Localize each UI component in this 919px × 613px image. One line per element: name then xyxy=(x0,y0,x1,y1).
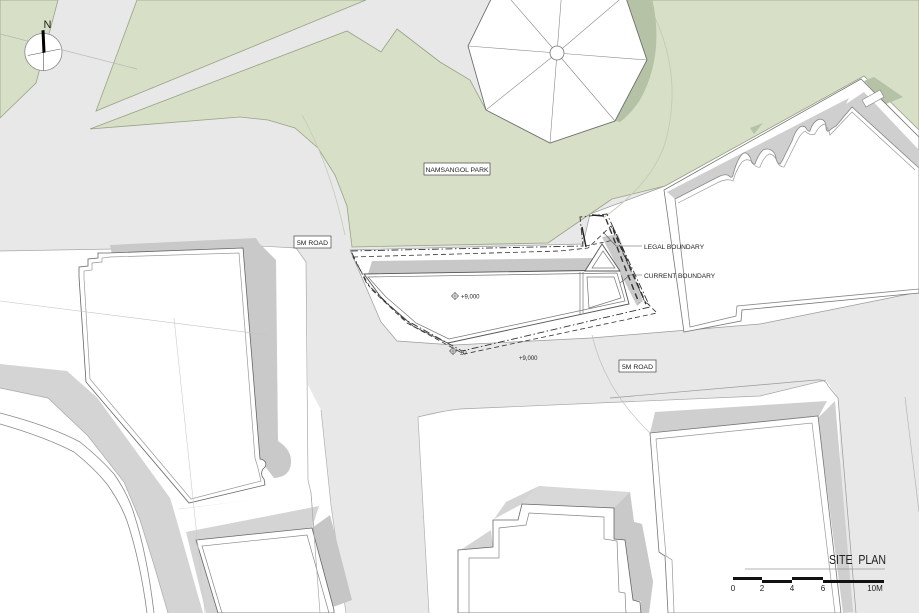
svg-text:0: 0 xyxy=(731,584,736,593)
svg-text:5M ROAD: 5M ROAD xyxy=(622,364,653,371)
svg-text:SITE PLAN: SITE PLAN xyxy=(829,553,886,567)
svg-text:N: N xyxy=(44,19,52,31)
svg-text:10M: 10M xyxy=(867,584,883,593)
svg-text:6: 6 xyxy=(821,584,826,593)
svg-text:+9,000: +9,000 xyxy=(461,295,480,301)
svg-text:2: 2 xyxy=(760,584,765,593)
svg-text:CURRENT BOUNDARY: CURRENT BOUNDARY xyxy=(644,273,716,280)
svg-text:+9,000: +9,000 xyxy=(519,356,538,362)
svg-text:NAMSANGOL PARK: NAMSANGOL PARK xyxy=(425,167,489,174)
svg-text:±0: ±0 xyxy=(460,351,467,357)
svg-text:4: 4 xyxy=(790,584,795,593)
svg-text:LEGAL BOUNDARY: LEGAL BOUNDARY xyxy=(644,244,705,251)
svg-text:5M ROAD: 5M ROAD xyxy=(297,240,328,247)
